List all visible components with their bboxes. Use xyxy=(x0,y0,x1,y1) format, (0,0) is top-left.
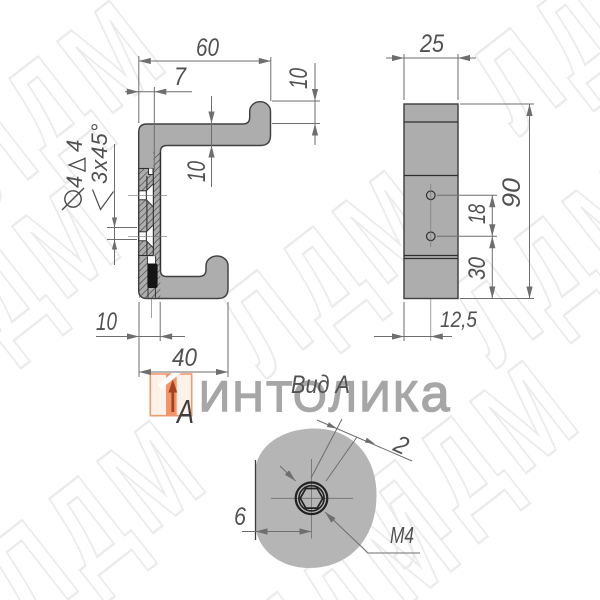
svg-text:M4: M4 xyxy=(390,522,414,548)
svg-text:10: 10 xyxy=(183,161,211,182)
svg-text:A: A xyxy=(175,393,194,430)
svg-text:3х45°: 3х45° xyxy=(87,122,112,184)
svg-text:Вид А: Вид А xyxy=(291,371,350,399)
svg-text:12,5: 12,5 xyxy=(440,307,478,332)
svg-text:30: 30 xyxy=(464,256,491,280)
svg-text:60: 60 xyxy=(196,34,219,62)
svg-text:40: 40 xyxy=(172,344,197,372)
svg-text:90: 90 xyxy=(498,178,526,208)
svg-text:7: 7 xyxy=(174,63,187,91)
svg-text:4: 4 xyxy=(62,176,87,188)
svg-text:4: 4 xyxy=(62,140,87,152)
svg-text:25: 25 xyxy=(419,30,444,58)
svg-text:18: 18 xyxy=(464,204,491,224)
svg-text:10: 10 xyxy=(96,308,117,336)
svg-text:6: 6 xyxy=(234,503,246,531)
svg-text:10: 10 xyxy=(285,68,313,89)
